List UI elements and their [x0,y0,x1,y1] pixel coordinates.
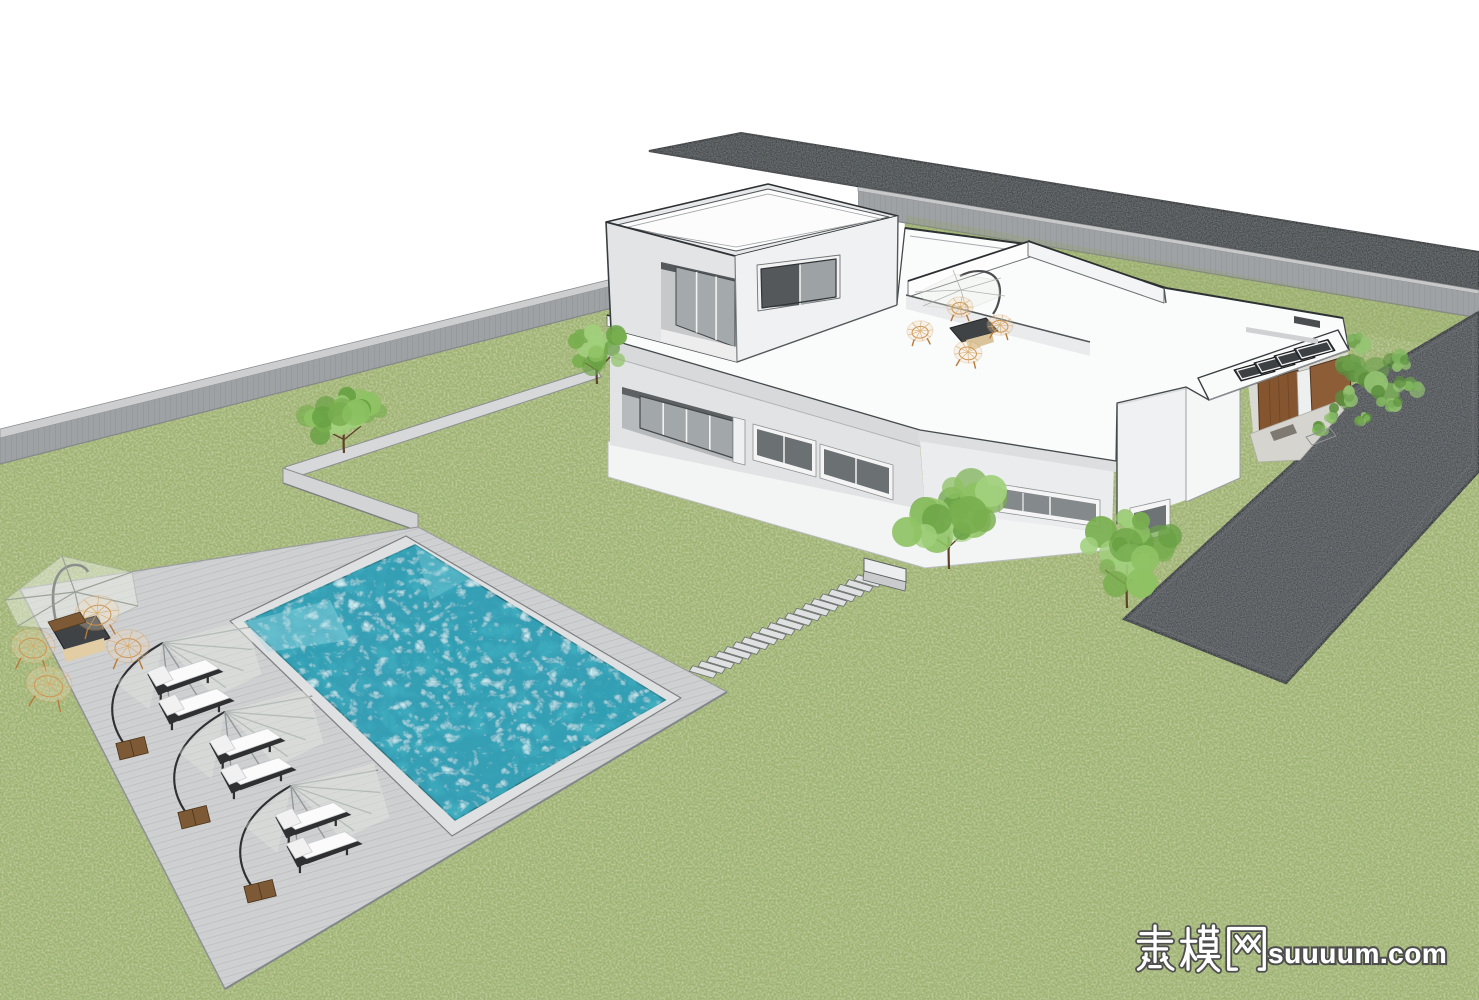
svg-text:suuuum.com: suuuum.com [1268,938,1447,969]
